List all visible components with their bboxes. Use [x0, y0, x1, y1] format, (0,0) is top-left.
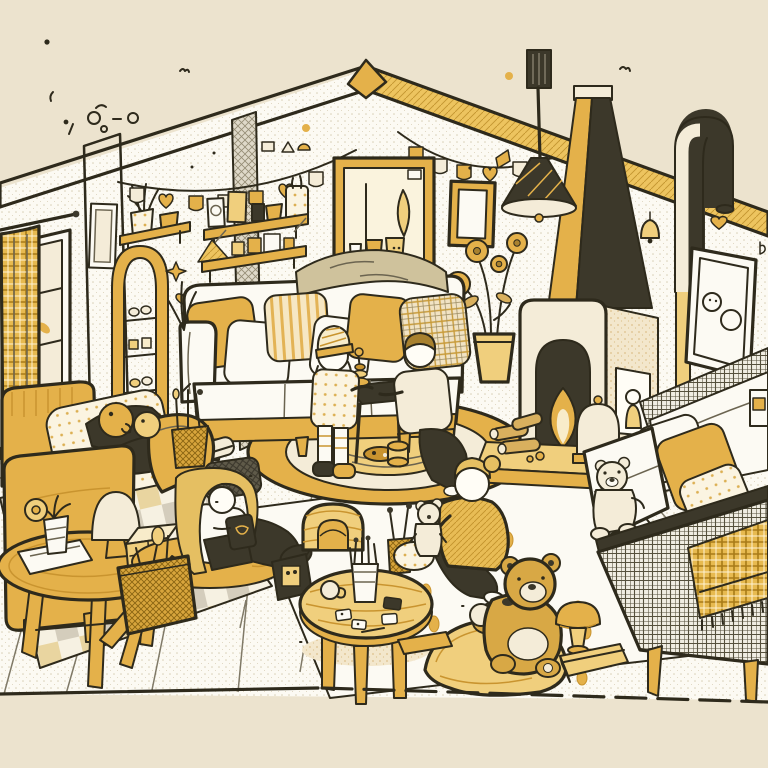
house-wall-art	[449, 181, 495, 246]
arch-toy	[303, 504, 363, 550]
wall-box	[750, 390, 768, 426]
small-wall-frame	[89, 204, 117, 269]
living-room-illustration: Hand-drawn cutaway illustration of a coz…	[0, 0, 768, 768]
toy-spool	[388, 442, 408, 467]
